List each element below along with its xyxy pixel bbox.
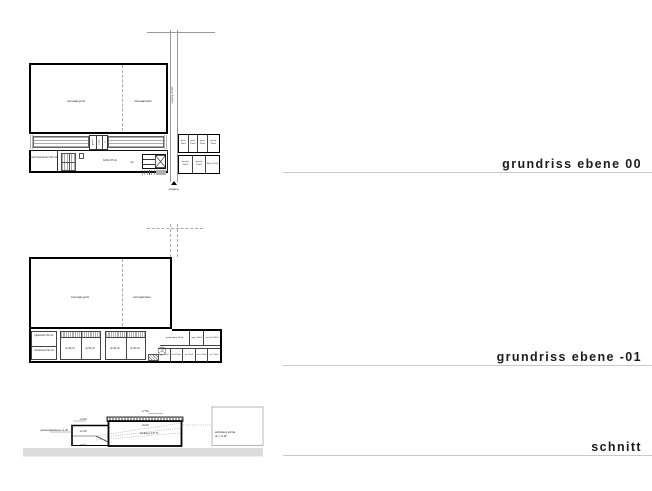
title-plan00: grundriss ebene 00 xyxy=(392,157,642,171)
lift-box xyxy=(79,153,84,159)
locker-block-2 xyxy=(105,331,146,360)
locker-divider xyxy=(81,332,82,359)
room-label-buffet: buffet 37m2 xyxy=(99,159,121,162)
title-rule-plan01 xyxy=(283,365,652,366)
room-label: garderoben 50m2 xyxy=(166,337,183,340)
shaft-unit xyxy=(142,154,166,169)
room-label-mehrzweck: mehrzweckraum 60 m2 xyxy=(31,157,57,160)
locker-label: uk 35 m2 xyxy=(61,348,79,351)
hall-m01 xyxy=(29,257,172,329)
tribune-left xyxy=(33,136,89,148)
room-label: lager 10m2 xyxy=(159,354,169,356)
shaft-x-icon xyxy=(155,155,166,168)
right-bottom-rooms-m01: lager 10m2 wc-d 15m2 wc 15m2 wc-h 15m2 e… xyxy=(158,348,220,362)
room-label: wc-d 15m2 xyxy=(172,354,182,356)
title-plan01: grundriss ebene -01 xyxy=(392,350,642,364)
room-label-turnsaal-gross-00: turnsaal groß xyxy=(50,99,102,103)
level-label-plateau: +1.20 xyxy=(76,429,90,433)
title-rule-plan00 xyxy=(283,172,652,173)
strip-room-label: wc xyxy=(104,141,106,144)
room-cell: garderoben 50m2 xyxy=(160,331,190,345)
room-label: technik 25m2 xyxy=(206,337,219,340)
shaft-shelf-1 xyxy=(143,159,155,160)
room-label-turnsaal-gross-m01: turnsaal groß xyxy=(55,295,105,299)
room-cell: gard. 15m2 xyxy=(198,135,208,152)
room-cell: geräte 25m2 xyxy=(208,135,219,152)
locker-block-1 xyxy=(60,331,101,360)
room-label-wc: wc xyxy=(127,161,137,164)
room-label: dusche 15m2 xyxy=(179,161,192,166)
room-cell: wc 15m2 xyxy=(183,349,196,362)
level-label-left-top: +3.00 xyxy=(76,417,90,421)
link-label-line1: anbindung schule xyxy=(215,431,251,434)
plateau-label: pausenplatzebene +1.20 xyxy=(26,429,68,432)
strip-room-label: geräte xyxy=(92,139,94,145)
title-schnitt: schnitt xyxy=(392,440,642,454)
hall-m01-divider xyxy=(122,259,123,326)
room-cell: wc-d 15m2 xyxy=(171,349,184,362)
room-cell: lager 10m2 xyxy=(158,349,171,362)
room-label: gard. 15m2 xyxy=(189,140,198,145)
room-cell: dusche 15m2 xyxy=(179,156,193,173)
room-label: e.k. 15m2 xyxy=(210,354,219,356)
strip-room-label: regie xyxy=(99,140,101,145)
slope-label: senkung 4.27 % xyxy=(136,432,162,435)
title-rule-schnitt xyxy=(283,455,652,456)
room-label-theorieraum: theorieraum 60 m2 xyxy=(32,350,57,353)
room-label: gard. 15m2 xyxy=(198,140,207,145)
locker-label: uk 35 m2 xyxy=(126,348,144,351)
right-top-rooms-m01: garderoben 50m2 regie 15m2 technik 25m2 xyxy=(160,331,220,346)
corridor-dashed-right xyxy=(177,224,178,257)
room-label: wc-h 15m2 xyxy=(197,354,207,356)
link-label-line2: ok = -0.26 xyxy=(215,435,251,438)
right-bottom-rooms-00: dusche 15m2 dusche 15m2 lehrer 27m2 xyxy=(178,155,220,174)
stair-00-rail xyxy=(61,162,76,163)
corridor-dashed-top xyxy=(147,228,203,229)
room-label: wc 15m2 xyxy=(185,354,193,356)
shaft-stair-stripes xyxy=(142,170,155,175)
strip-room-cell: wc xyxy=(103,136,107,149)
room-label-garderoben60: garderoben 60 m2 xyxy=(32,335,57,338)
room-label: regie 15m2 xyxy=(191,337,202,340)
architectural-drawing-sheet: turnsaal groß turnsaal klein zugang schu… xyxy=(0,0,652,491)
tribune-right xyxy=(108,136,164,148)
room-cell: technik 25m2 xyxy=(204,331,220,345)
room-cell: dusche 15m2 xyxy=(193,156,207,173)
room-label: geräte 25m2 xyxy=(208,140,219,145)
terrain-band xyxy=(23,448,263,457)
room-label: dusche 15m2 xyxy=(193,161,206,166)
corridor-label: zugang schule xyxy=(171,77,177,113)
room-cell: gard. 15m2 xyxy=(179,135,189,152)
corridor-top-line xyxy=(147,32,215,33)
right-top-rooms-00: gard. 15m2 gard. 15m2 gard. 15m2 geräte … xyxy=(178,134,220,153)
room-mehrzweck xyxy=(31,151,58,171)
room-label-turnsaal-klein-m01: turnsaal klein xyxy=(120,295,164,299)
room-cell: gard. 15m2 xyxy=(189,135,199,152)
locker-divider xyxy=(126,332,127,359)
strip-rooms: geräte regie wc xyxy=(89,135,108,150)
left-rooms-divider xyxy=(32,346,56,347)
tribune-cap-right xyxy=(164,135,167,149)
level-label-roof-bottom: +6.00 xyxy=(137,423,153,427)
locker-label: uk 35 m2 xyxy=(81,348,99,351)
level-label-roof-top: +7.50 xyxy=(137,409,153,413)
level-label-floor: -1.00 xyxy=(137,444,153,448)
level-label-zero: 0.00 xyxy=(76,443,90,447)
corridor-dashed-left xyxy=(170,224,171,257)
room-label-turnsaal-klein-00: turnsaal klein xyxy=(121,99,165,103)
room-cell: wc-h 15m2 xyxy=(196,349,209,362)
room-cell: lehrer 27m2 xyxy=(206,156,219,173)
shaft-gray-block xyxy=(156,170,166,175)
link-structure xyxy=(212,407,263,446)
room-label: lehrer 27m2 xyxy=(207,163,219,166)
room-cell: e.k. 15m2 xyxy=(208,349,220,362)
locker-label: uk 35 m2 xyxy=(106,348,124,351)
entrance-arrow-icon xyxy=(171,181,177,185)
hall-00-divider xyxy=(122,65,123,131)
strip-room-cell: geräte xyxy=(90,136,97,149)
shaft-shelf-2 xyxy=(143,164,155,165)
room-cell: regie 15m2 xyxy=(190,331,204,345)
entrance-label: eingang xyxy=(162,187,185,191)
room-label: gard. 15m2 xyxy=(179,140,188,145)
